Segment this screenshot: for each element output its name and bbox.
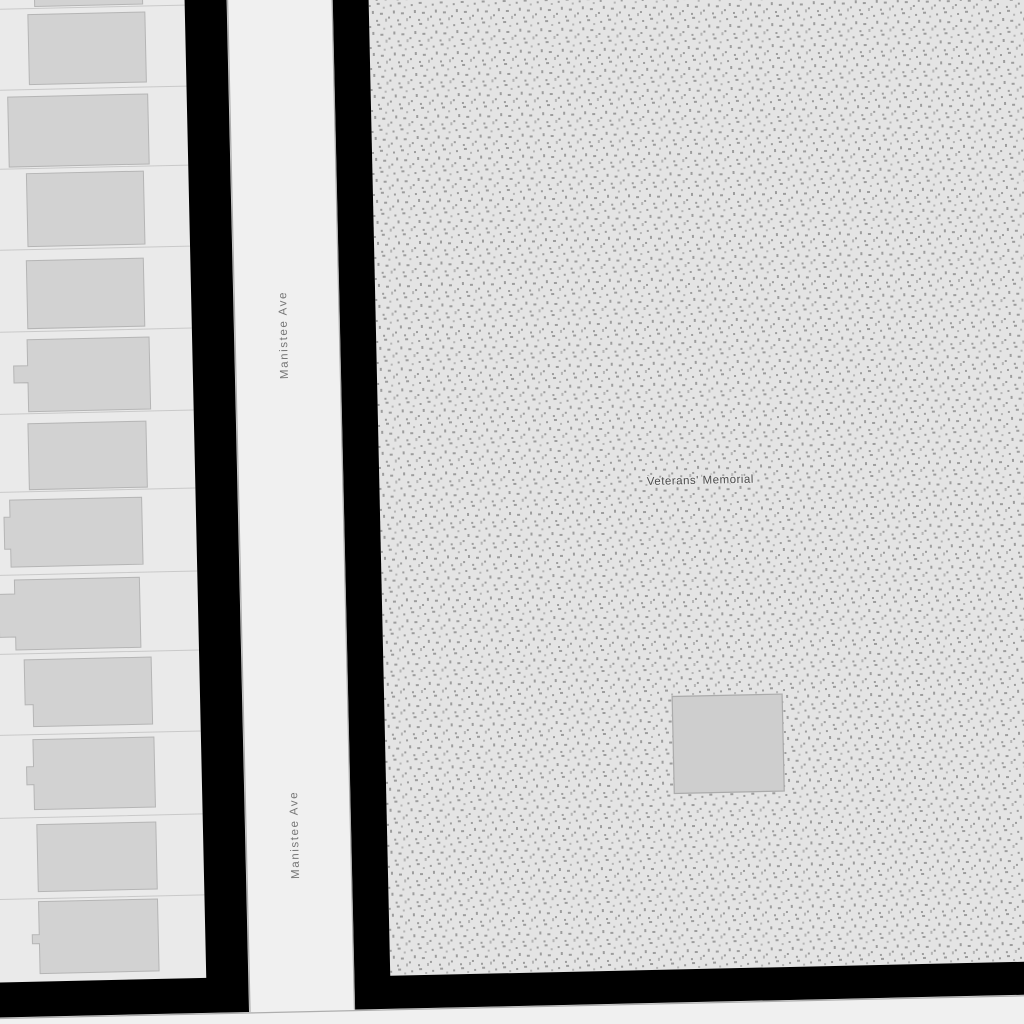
memorial-area-label: Veterans' Memorial: [647, 474, 754, 488]
map-canvas[interactable]: Manistee Ave Manistee Ave Veterans' Memo…: [0, 0, 1024, 1024]
building-footprint: [13, 337, 151, 412]
building-footprint: [24, 657, 152, 727]
building-footprint: [0, 577, 141, 650]
street-name-label: Manistee Ave: [277, 291, 291, 379]
building-footprint: [26, 258, 144, 329]
memorial-area: [368, 0, 1024, 976]
map-svg: Manistee Ave Manistee Ave Veterans' Memo…: [0, 0, 1024, 1024]
building-footprint: [32, 899, 160, 974]
memorial-building: [672, 694, 784, 793]
map-rotated-grid: Manistee Ave Manistee Ave Veterans' Memo…: [0, 0, 1024, 1019]
building-footprint: [26, 737, 156, 810]
street-name-label: Manistee Ave: [288, 791, 302, 879]
building-footprint: [28, 421, 147, 490]
building-footprint: [26, 171, 145, 247]
building-footprint: [28, 12, 147, 85]
building-footprint: [37, 822, 157, 892]
building-footprint: [4, 497, 143, 567]
building-footprint: [8, 94, 150, 167]
